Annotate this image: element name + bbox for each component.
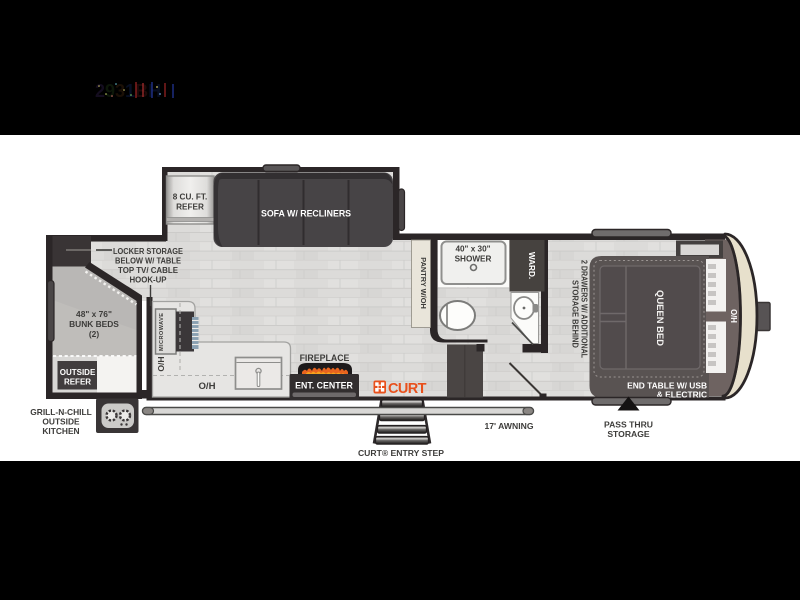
svg-text:17' AWNING: 17' AWNING <box>485 421 534 431</box>
svg-text:PANTRY W/OH: PANTRY W/OH <box>419 257 428 309</box>
svg-text:REFER: REFER <box>64 378 91 387</box>
svg-text:OUTSIDE: OUTSIDE <box>42 417 80 427</box>
svg-text:STORAGE: STORAGE <box>607 429 650 439</box>
svg-text:WARD.: WARD. <box>527 252 536 279</box>
svg-text:KITCHEN: KITCHEN <box>42 426 79 436</box>
svg-text:48" x 76": 48" x 76" <box>76 309 112 319</box>
svg-text:GRILL-N-CHILL: GRILL-N-CHILL <box>30 407 91 417</box>
svg-text:O/H: O/H <box>729 309 738 323</box>
svg-text:40" x 30": 40" x 30" <box>455 245 490 254</box>
svg-text:CURT® ENTRY STEP: CURT® ENTRY STEP <box>358 448 444 458</box>
svg-text:OUTSIDE: OUTSIDE <box>60 368 96 377</box>
svg-text:CURT: CURT <box>388 381 427 397</box>
svg-text:BUNK BEDS: BUNK BEDS <box>69 319 119 329</box>
svg-text:2931BH: 2931BH <box>95 81 161 101</box>
svg-text:TOP TV/ CABLE: TOP TV/ CABLE <box>118 265 178 275</box>
svg-text:HOOK-UP: HOOK-UP <box>130 275 167 285</box>
svg-text:BELOW W/ TABLE: BELOW W/ TABLE <box>115 256 181 266</box>
svg-text:(2): (2) <box>89 329 99 339</box>
svg-text:O/H: O/H <box>198 381 215 392</box>
svg-text:MICROWAVE: MICROWAVE <box>159 313 165 351</box>
svg-text:SHOWER: SHOWER <box>455 255 492 264</box>
svg-text:ENT. CENTER: ENT. CENTER <box>295 381 353 391</box>
svg-text:STORAGE BEHIND: STORAGE BEHIND <box>571 280 580 348</box>
svg-text:2 DRAWERS W/ ADDITIONAL: 2 DRAWERS W/ ADDITIONAL <box>580 260 589 358</box>
svg-text:QUEEN BED: QUEEN BED <box>655 290 665 346</box>
svg-text:FIREPLACE: FIREPLACE <box>300 353 350 363</box>
svg-text:O/H: O/H <box>156 356 166 371</box>
svg-text:REFER: REFER <box>176 203 204 212</box>
svg-text:PASS THRU: PASS THRU <box>604 420 653 430</box>
svg-text:8 CU. FT.: 8 CU. FT. <box>173 193 208 202</box>
svg-text:LOCKER STORAGE: LOCKER STORAGE <box>113 246 183 256</box>
svg-text:SOFA W/ RECLINERS: SOFA W/ RECLINERS <box>261 209 351 219</box>
